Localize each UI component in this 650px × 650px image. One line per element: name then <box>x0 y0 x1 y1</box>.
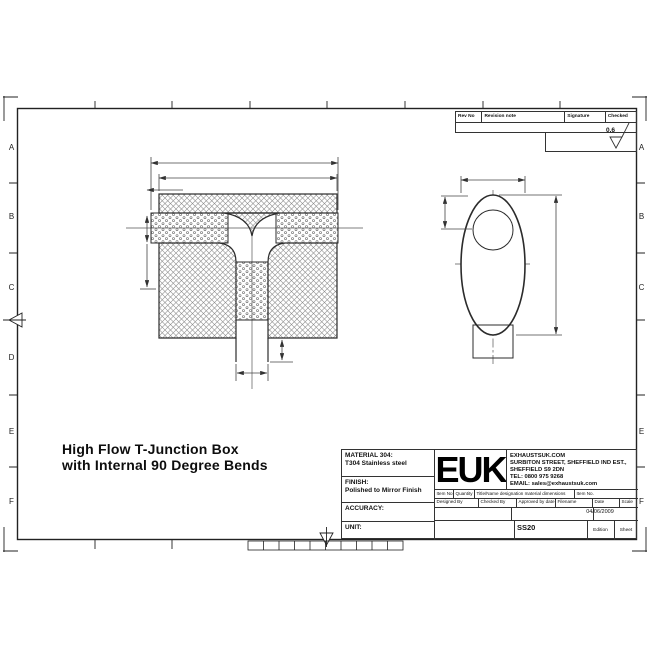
designed-by-header: Designed By <box>435 498 479 507</box>
company-line-1: EXHAUSTSUK.COM <box>510 453 638 460</box>
material-value: T304 Stainless steel <box>345 460 434 468</box>
engineering-drawing-sheet: A B C D E F A B C E F Rev No Revision no… <box>0 0 650 650</box>
zone-label-left-e: E <box>5 427 18 437</box>
accuracy-label: ACCURACY: <box>345 505 434 513</box>
top-wall-hatched <box>159 194 337 213</box>
zone-label-left-b: B <box>5 212 18 222</box>
zone-label-right-e: E <box>635 427 648 437</box>
right-body-hatched <box>268 243 337 338</box>
zone-label-left-c: C <box>5 283 18 293</box>
scale-header: Scale <box>620 498 636 507</box>
material-cell: MATERIAL 304: T304 Stainless steel <box>342 450 435 477</box>
surface-finish-value: 0.6 <box>599 127 615 134</box>
revision-note-header: Revision note <box>482 112 565 122</box>
item-no2-header: Item No. <box>575 490 636 498</box>
drawing-title: High Flow T-Junction Box with Internal 9… <box>62 441 268 473</box>
oval-end-view <box>441 176 562 366</box>
oval-body-outline <box>461 195 525 335</box>
quantity-header: Quantity <box>454 490 475 498</box>
logo-text: EUK <box>435 450 505 490</box>
left-perforated-tube <box>151 213 228 243</box>
finish-value: Polished to Mirror Finish <box>345 487 434 495</box>
drawing-number: SS20 <box>514 523 589 532</box>
company-logo: EUK <box>435 450 507 490</box>
finish-cell: FINISH: Polished to Mirror Finish <box>342 477 435 503</box>
company-line-3: SHEFFIELD S9 2DN <box>510 467 638 474</box>
outlet-perforated-tube <box>236 262 268 320</box>
left-body-hatched <box>159 243 236 338</box>
drawing-title-line1: High Flow T-Junction Box <box>62 441 268 457</box>
filename-header: Filename <box>556 498 593 507</box>
zone-label-left-d: D <box>5 353 18 363</box>
unit-label: UNIT: <box>345 524 434 532</box>
approved-by-header: Approved by date <box>517 498 556 507</box>
edition-label: Edition <box>587 521 614 540</box>
rev-no-header: Rev No <box>456 112 482 122</box>
company-line-2: SURBITON STREET, SHEFFIELD IND EST., <box>510 460 638 467</box>
unit-cell: UNIT: <box>342 522 435 540</box>
right-perforated-tube <box>276 213 338 243</box>
centering-marks <box>3 313 333 547</box>
approval-value-row: 04/06/2009 <box>435 507 638 521</box>
title-name-header: Title/Name designation material dimensio… <box>475 490 575 498</box>
surface-finish-box <box>545 133 637 152</box>
item-no-header: Item No <box>435 490 454 498</box>
value-row-divider-1 <box>511 507 512 520</box>
signature-header: Signature <box>565 112 606 122</box>
drawing-number-row: SS20 Edition Sheet <box>435 521 638 540</box>
company-line-4: TEL: 0800 975 9268 <box>510 474 638 481</box>
zone-label-right-b: B <box>635 212 648 222</box>
internal-flow-splitter <box>224 213 280 236</box>
company-address-cell: EXHAUSTSUK.COM SURBITON STREET, SHEFFIEL… <box>507 450 638 490</box>
revision-table-header: Rev No Revision note Signature Checked <box>456 112 636 123</box>
zone-label-right-c: C <box>635 283 648 293</box>
finish-label: FINISH: <box>345 479 434 487</box>
checked-header: Checked <box>606 112 636 122</box>
accuracy-cell: ACCURACY: <box>342 503 435 522</box>
date-value: 04/06/2009 <box>565 509 635 515</box>
drawing-title-line2: with Internal 90 Degree Bends <box>62 457 268 473</box>
drawing-linework <box>0 0 650 650</box>
company-line-5: EMAIL: sales@exhaustsuk.com <box>510 481 638 488</box>
t-junction-section-view <box>126 157 363 389</box>
title-block: MATERIAL 304: T304 Stainless steel FINIS… <box>341 449 637 539</box>
sheet-label: Sheet <box>614 521 638 540</box>
zone-label-left-f: F <box>5 497 18 507</box>
graduation-strip <box>248 541 403 550</box>
date-header: Date <box>593 498 620 507</box>
material-label: MATERIAL 304: <box>345 452 434 460</box>
zone-label-left-a: A <box>5 143 18 153</box>
checked-by-header: Checked By <box>479 498 517 507</box>
